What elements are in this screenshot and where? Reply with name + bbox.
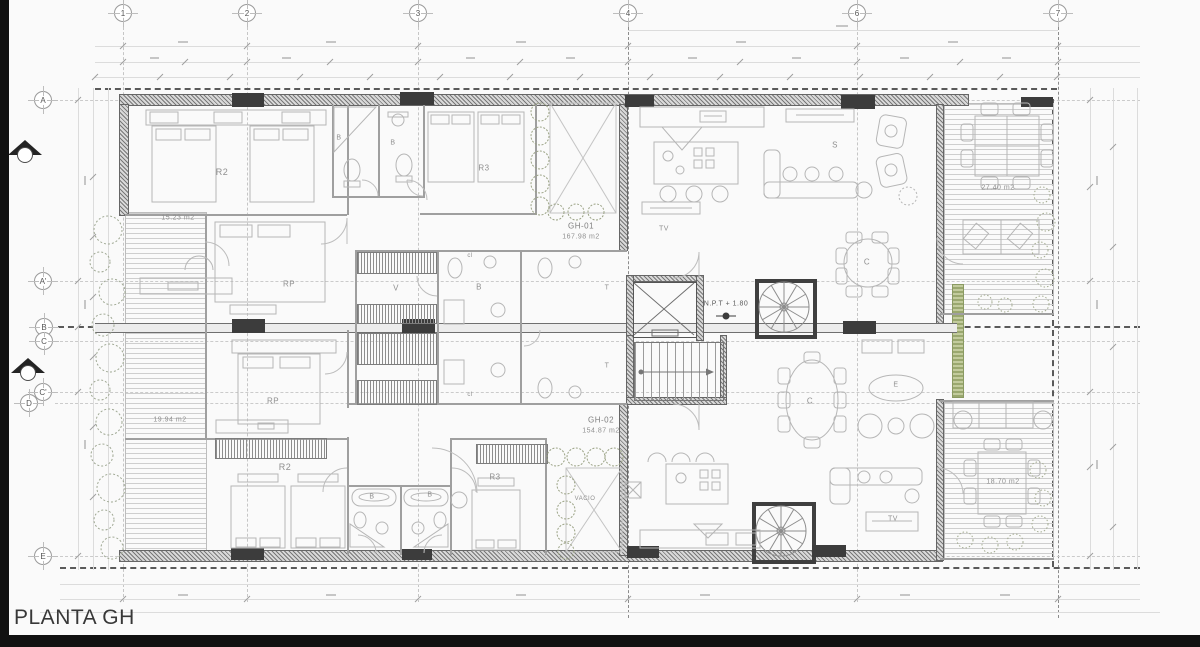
spiral-stair-bottom [756, 506, 806, 556]
frame-bar-left [0, 0, 9, 647]
linework-layer [0, 0, 1200, 647]
grid-column-marker-7: 7 [1049, 4, 1067, 22]
npt-level-marker [716, 313, 736, 319]
unit-area-gh01: 167.98 m2 [562, 234, 600, 241]
bedroom-rp-bottom-furniture [216, 340, 336, 433]
grid-row-marker-d: D [20, 394, 38, 412]
grid-row-label: A [39, 96, 46, 105]
living-bottom-furniture [830, 468, 922, 531]
npt-level-text: N.P.T + 1.80 [704, 301, 748, 308]
study-e-furniture [858, 340, 934, 438]
unit-label-gh01: GH-01 [568, 222, 594, 231]
grid-column-label: 4 [625, 9, 631, 18]
bedroom-rp-top-furniture [215, 222, 325, 314]
grid-row-marker-c: C [35, 332, 53, 350]
room-label-tv-bottom: TV [888, 516, 898, 523]
grid-row-label: C' [38, 388, 47, 397]
bathroom-mid-fixtures [444, 256, 581, 398]
grid-column-label: 6 [854, 9, 860, 18]
room-label-bath-bottom-2: B [427, 492, 432, 499]
room-label-closet-bottom: cl [467, 392, 472, 398]
sheet-title: PLANTA GH [14, 606, 135, 630]
area-label-terrace-top-right: 27.40 m2 [981, 185, 1014, 192]
unit-label-gh02: GH-02 [588, 416, 614, 425]
bedroom-r3-bottom-furniture [451, 478, 520, 550]
void-patio-linework [550, 103, 622, 552]
room-label-rp-bottom: RP [267, 397, 279, 406]
room-label-tv-top: TV [659, 226, 669, 233]
room-label-bath-top-1: B [336, 135, 341, 142]
kitchen-bottom-furniture [625, 453, 760, 548]
grid-row-marker-a2: A' [34, 272, 52, 290]
grid-column-label: 7 [1055, 9, 1061, 18]
room-label-bath-mid: B [476, 283, 482, 292]
grid-row-label: E [39, 552, 46, 561]
elevator-linework [634, 283, 694, 336]
grid-row-marker-a: A [34, 91, 52, 109]
spiral-stair-top [759, 282, 809, 332]
terrace-top-right-furniture [961, 103, 1053, 254]
grid-column-label: 2 [244, 9, 250, 18]
room-label-bath-top-2: B [390, 140, 395, 147]
grid-row-label: C [40, 337, 48, 346]
grid-column-marker-3: 3 [409, 4, 427, 22]
bedroom-r3-top-furniture [428, 112, 524, 182]
room-label-rp-top: RP [283, 280, 295, 289]
room-label-toilet-top: T [605, 285, 610, 292]
room-label-r3-bottom: R3 [489, 473, 500, 482]
room-label-toilet-bottom: T [605, 363, 610, 370]
area-label-terrace-bottom-left: 19.94 m2 [153, 417, 186, 424]
stair-direction-arrow [639, 369, 715, 376]
grid-column-label: 3 [415, 9, 421, 18]
section-cut-marker-bubble [20, 365, 36, 381]
vegetation-left-band [90, 216, 125, 559]
grid-row-marker-e: E [34, 547, 52, 565]
room-label-r2-top: R2 [216, 167, 229, 177]
grid-column-marker-4: 4 [619, 4, 637, 22]
dimension-text-marks [84, 25, 1098, 596]
bedroom-r2-bottom-furniture [231, 474, 345, 548]
grid-column-label: 1 [120, 9, 126, 18]
grid-row-label: A' [39, 277, 48, 286]
room-label-dining-top: C [864, 258, 870, 267]
grid-row-label: D [25, 399, 33, 408]
grid-column-marker-1: 1 [114, 4, 132, 22]
bathroom-bottom-fixtures [350, 489, 448, 547]
grid-row-label: B [40, 323, 47, 332]
room-label-r3-top: R3 [478, 164, 489, 173]
room-label-closet-top: cl [467, 253, 472, 259]
grid-column-marker-2: 2 [238, 4, 256, 22]
living-top-furniture [764, 109, 917, 205]
grid-column-marker-6: 6 [848, 4, 866, 22]
kitchen-top-furniture [640, 107, 764, 214]
area-label-terrace-bottom-right: 18.70 m2 [986, 479, 1019, 486]
room-label-closet-v: V [393, 284, 399, 293]
void-label: VACIO [575, 496, 596, 502]
frame-bar-bottom [0, 635, 1200, 647]
section-cut-marker-bubble [17, 147, 33, 163]
bathroom-top-fixtures [334, 107, 412, 187]
floor-plan-sheet: R2 B B R3 15.23 m2 RP V B cl cl T T TV G… [0, 0, 1200, 647]
planter-pots [531, 103, 623, 559]
area-label-terrace-top-left: 15.23 m2 [161, 215, 194, 222]
unit-area-gh02: 154.87 m2 [582, 428, 620, 435]
bedroom-r2-top-furniture [140, 110, 326, 294]
room-label-r2-bottom: R2 [279, 462, 292, 472]
room-label-dining-bottom: C [807, 397, 813, 406]
room-label-study-e: E [893, 382, 898, 389]
terrace-bottom-right-furniture [953, 402, 1052, 527]
room-label-living-s: S [832, 141, 838, 150]
room-label-bath-bottom-1: B [369, 494, 374, 501]
